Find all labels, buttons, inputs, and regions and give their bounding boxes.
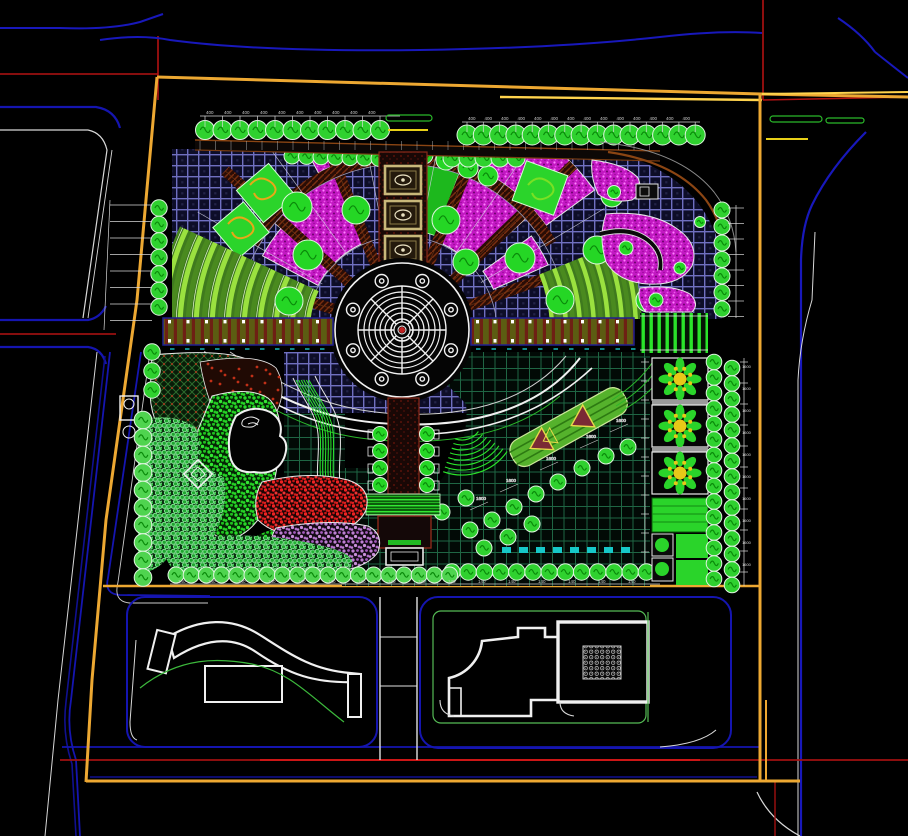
svg-text:400: 400: [332, 110, 340, 115]
svg-text:400: 400: [617, 116, 625, 121]
svg-text:1600: 1600: [742, 430, 752, 435]
svg-text:400: 400: [350, 110, 358, 115]
svg-text:400: 400: [314, 110, 322, 115]
svg-text:400: 400: [551, 116, 559, 121]
svg-text:1600: 1600: [742, 474, 752, 479]
svg-text:140: 140: [628, 579, 636, 584]
svg-text:1600: 1600: [742, 496, 752, 501]
svg-text:140: 140: [418, 579, 426, 584]
svg-text:400: 400: [683, 116, 691, 121]
svg-text:1600: 1600: [506, 478, 517, 483]
svg-text:1600: 1600: [742, 452, 752, 457]
svg-text:1600: 1600: [742, 540, 752, 545]
svg-text:400: 400: [224, 110, 232, 115]
svg-text:1600: 1600: [742, 518, 752, 523]
svg-text:140: 140: [298, 579, 306, 584]
svg-text:400: 400: [260, 110, 268, 115]
svg-text:1600: 1600: [742, 364, 752, 369]
svg-text:1600: 1600: [742, 408, 752, 413]
svg-text:400: 400: [296, 110, 304, 115]
svg-text:140: 140: [178, 579, 186, 584]
svg-text:1600: 1600: [546, 456, 557, 461]
svg-text:140: 140: [388, 579, 396, 584]
svg-text:400: 400: [242, 110, 250, 115]
svg-text:1600: 1600: [742, 562, 752, 567]
svg-text:140: 140: [328, 579, 336, 584]
svg-text:400: 400: [650, 116, 658, 121]
svg-text:140: 140: [358, 579, 366, 584]
svg-text:400: 400: [600, 116, 608, 121]
svg-text:400: 400: [666, 116, 674, 121]
svg-text:1600: 1600: [616, 418, 627, 423]
svg-text:140: 140: [268, 579, 276, 584]
svg-text:140: 140: [538, 579, 546, 584]
svg-text:140: 140: [568, 579, 576, 584]
svg-text:400: 400: [534, 116, 542, 121]
svg-text:400: 400: [468, 116, 476, 121]
svg-text:400: 400: [485, 116, 493, 121]
svg-text:400: 400: [501, 116, 509, 121]
svg-text:140: 140: [478, 579, 486, 584]
svg-text:400: 400: [518, 116, 526, 121]
svg-text:400: 400: [584, 116, 592, 121]
svg-text:140: 140: [598, 579, 606, 584]
svg-text:1600: 1600: [742, 386, 752, 391]
svg-text:1600: 1600: [586, 434, 597, 439]
svg-text:1600: 1600: [476, 496, 487, 501]
svg-text:140: 140: [448, 579, 456, 584]
svg-text:400: 400: [368, 110, 376, 115]
svg-text:400: 400: [567, 116, 575, 121]
svg-text:400: 400: [633, 116, 641, 121]
svg-text:140: 140: [208, 579, 216, 584]
svg-text:140: 140: [238, 579, 246, 584]
svg-text:140: 140: [508, 579, 516, 584]
svg-text:400: 400: [206, 110, 214, 115]
svg-text:400: 400: [278, 110, 286, 115]
